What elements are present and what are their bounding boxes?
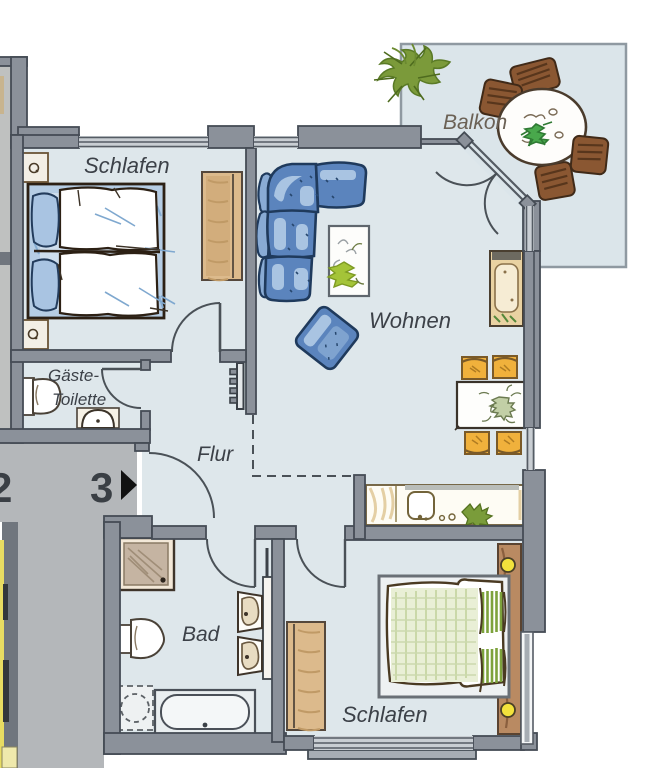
svg-text:Gäste-: Gäste- [48, 366, 99, 385]
svg-text:3: 3 [90, 464, 113, 511]
svg-text:Toilette: Toilette [52, 390, 106, 409]
svg-text:Balkon: Balkon [443, 111, 507, 134]
svg-text:Schlafen: Schlafen [342, 702, 428, 727]
svg-text:Bad: Bad [182, 623, 221, 646]
svg-text:Flur: Flur [197, 443, 234, 466]
svg-text:Schlafen: Schlafen [84, 153, 170, 178]
svg-text:Wohnen: Wohnen [369, 308, 451, 333]
svg-text:2: 2 [0, 464, 12, 511]
